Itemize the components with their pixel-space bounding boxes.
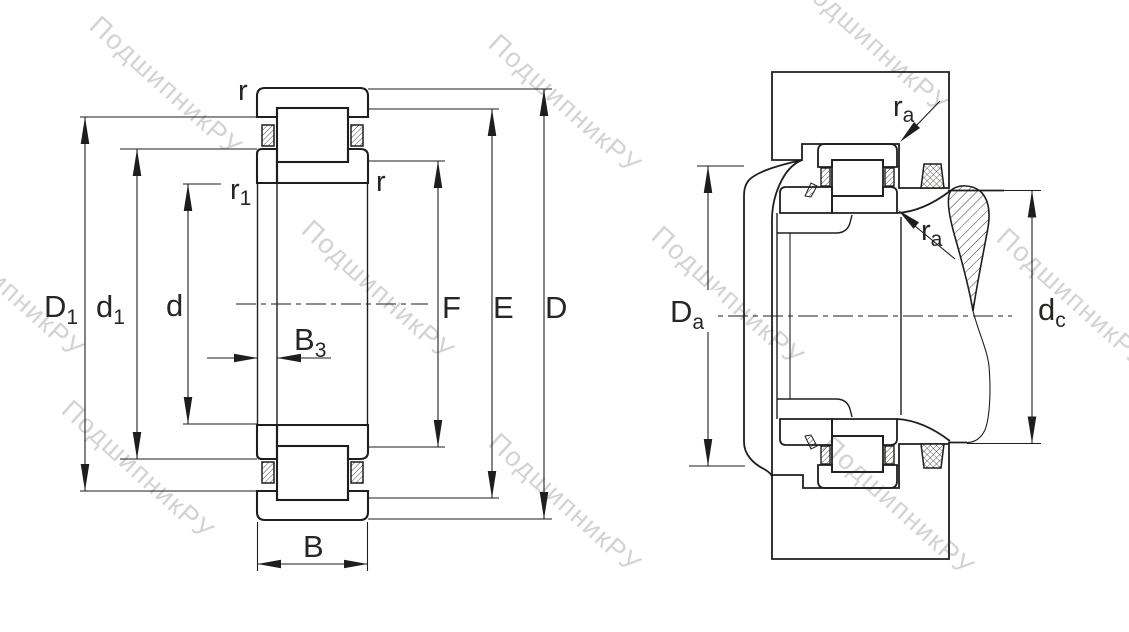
dimension-D1: D1 — [44, 117, 257, 491]
watermark-text: ПодшипникРУ — [991, 222, 1129, 374]
mounted-outer-ring-top — [818, 144, 897, 167]
thrust-collar-bottom-section — [257, 425, 277, 459]
mounted-cage-top-right — [885, 168, 894, 186]
mounted-cage-bottom-right — [885, 446, 894, 464]
label-r1: r1 — [230, 174, 251, 210]
mounted-collar-bottom — [780, 419, 832, 445]
cage-prong-top — [805, 183, 817, 197]
locating-spacer-top — [921, 164, 944, 188]
mounted-roller-top — [832, 160, 883, 196]
label-r-right: r — [376, 166, 386, 198]
cage-top-left — [262, 125, 274, 146]
dimension-B: B — [258, 522, 368, 571]
mounted-collar-top — [780, 187, 832, 213]
dim-label-F: F — [442, 290, 461, 325]
bearing-dimension-drawing: ПодшипникРУ ПодшипникРУ ПодшипникРУ Подш… — [0, 0, 1129, 632]
inner-ring-top-section — [277, 149, 368, 183]
roller-bottom — [277, 446, 348, 500]
mounted-cage-bottom-left — [821, 446, 830, 464]
watermark-text: ПодшипникРУ — [791, 0, 955, 119]
locating-spacer-bottom — [921, 444, 944, 468]
cage-bottom-right — [351, 462, 363, 483]
dim-label-E: E — [493, 290, 514, 325]
cage-top-right — [351, 125, 363, 146]
dim-label-d: d — [166, 288, 183, 323]
cage-prong-bottom — [805, 435, 817, 449]
watermark-text: ПодшипникРУ — [84, 10, 248, 162]
watermark-text: ПодшипникРУ — [56, 394, 220, 546]
callout-ra-bottom: ra — [898, 210, 955, 259]
watermark-text: ПодшипникРУ — [483, 28, 647, 180]
shaft-broken-out-section — [948, 186, 988, 311]
left-view: D1 d1 d F — [44, 75, 567, 571]
cage-bottom-left — [262, 462, 274, 483]
dim-label-D: D — [545, 290, 567, 325]
label-r-top: r — [238, 75, 248, 107]
dim-label-B3: B3 — [294, 322, 326, 362]
outer-ring-bottom-section — [257, 491, 368, 520]
dim-label-D1: D1 — [44, 289, 78, 329]
dimension-B3: B3 — [207, 322, 331, 362]
mounted-inner-ring-top — [832, 187, 897, 213]
watermark-text: ПодшипникРУ — [483, 427, 647, 579]
shaft-break-line — [967, 311, 990, 443]
dim-label-d1: d1 — [96, 289, 125, 329]
outer-ring-top-section — [257, 88, 368, 117]
inner-ring-bottom-section — [277, 425, 368, 459]
mounted-cage-top-left — [821, 168, 830, 186]
technical-drawing-page: ПодшипникРУ ПодшипникРУ ПодшипникРУ Подш… — [0, 0, 1129, 632]
label-ra-bottom: ra — [921, 215, 943, 251]
thrust-collar-top-section — [257, 149, 277, 183]
dim-label-B: B — [303, 529, 324, 564]
roller-top — [277, 108, 348, 162]
